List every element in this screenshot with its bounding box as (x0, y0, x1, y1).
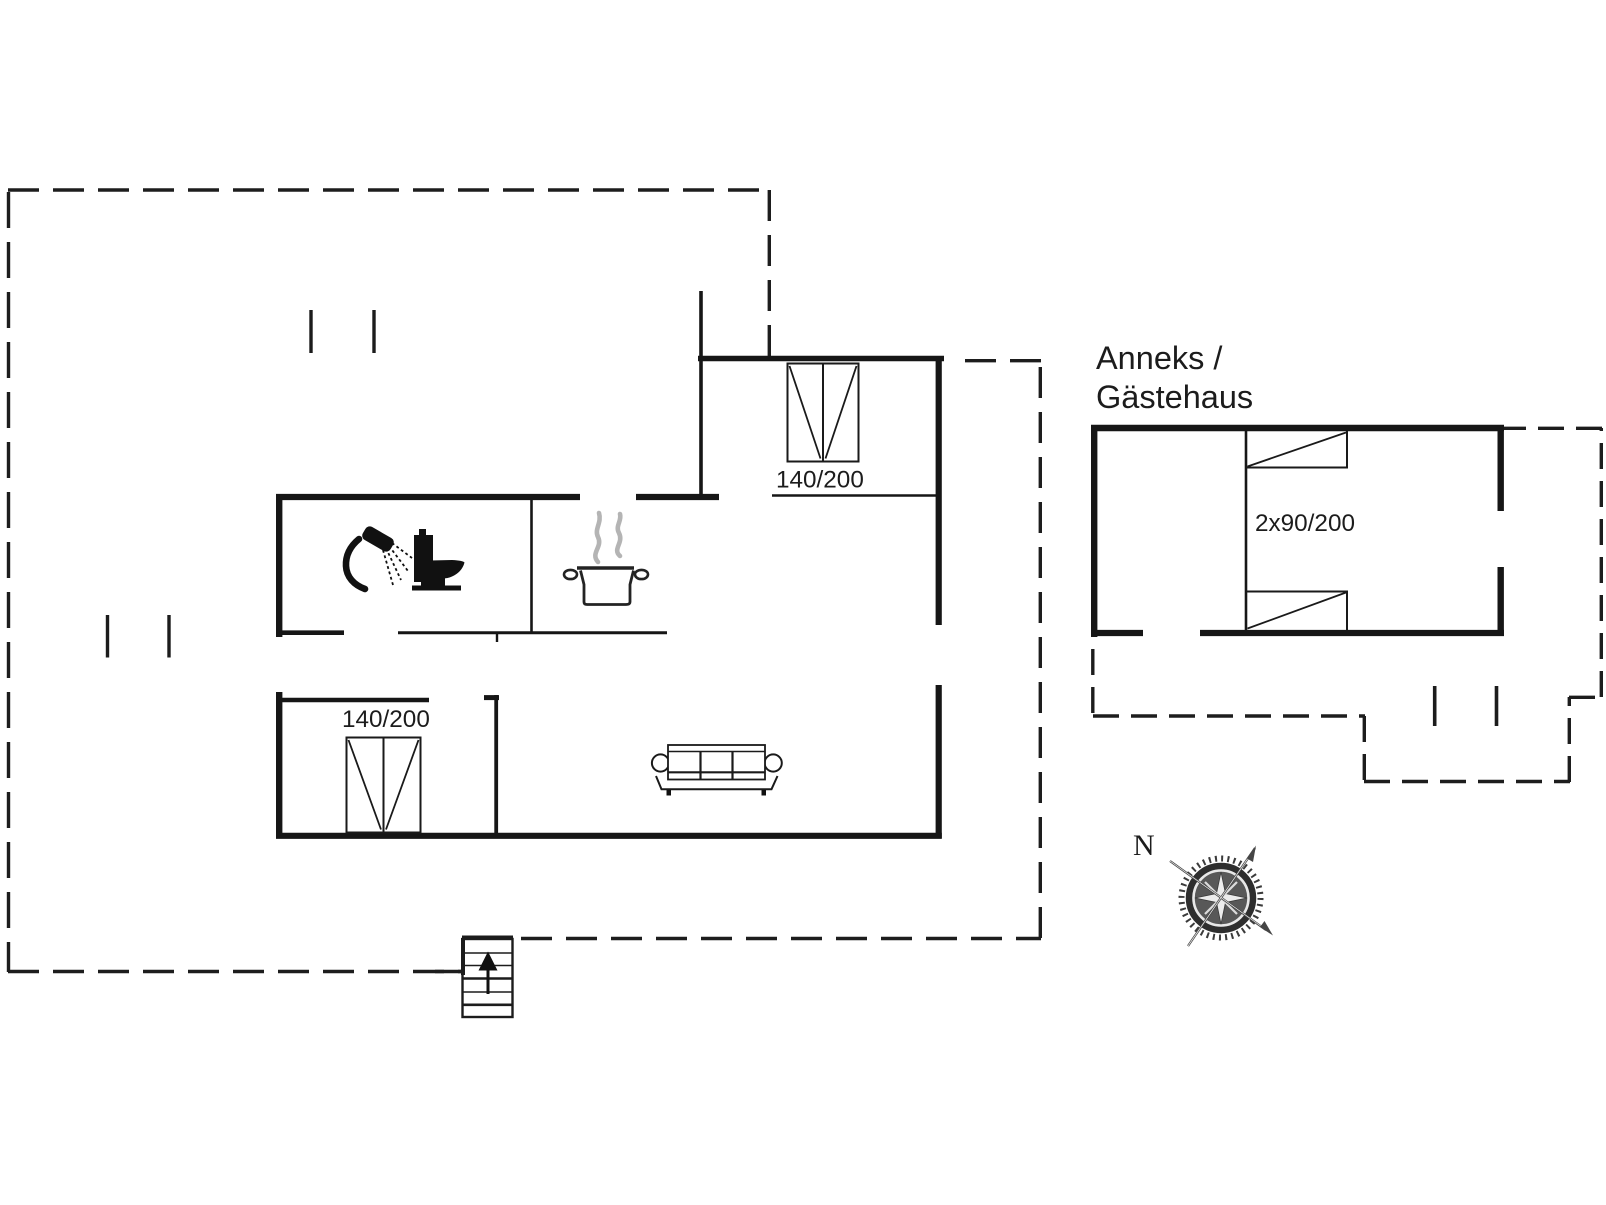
svg-text:Anneks /: Anneks / (1096, 340, 1223, 376)
svg-text:Gästehaus: Gästehaus (1096, 379, 1253, 415)
svg-text:2x90/200: 2x90/200 (1255, 510, 1355, 537)
svg-text:N: N (1133, 829, 1155, 862)
svg-text:140/200: 140/200 (776, 467, 864, 494)
svg-text:140/200: 140/200 (342, 706, 430, 733)
